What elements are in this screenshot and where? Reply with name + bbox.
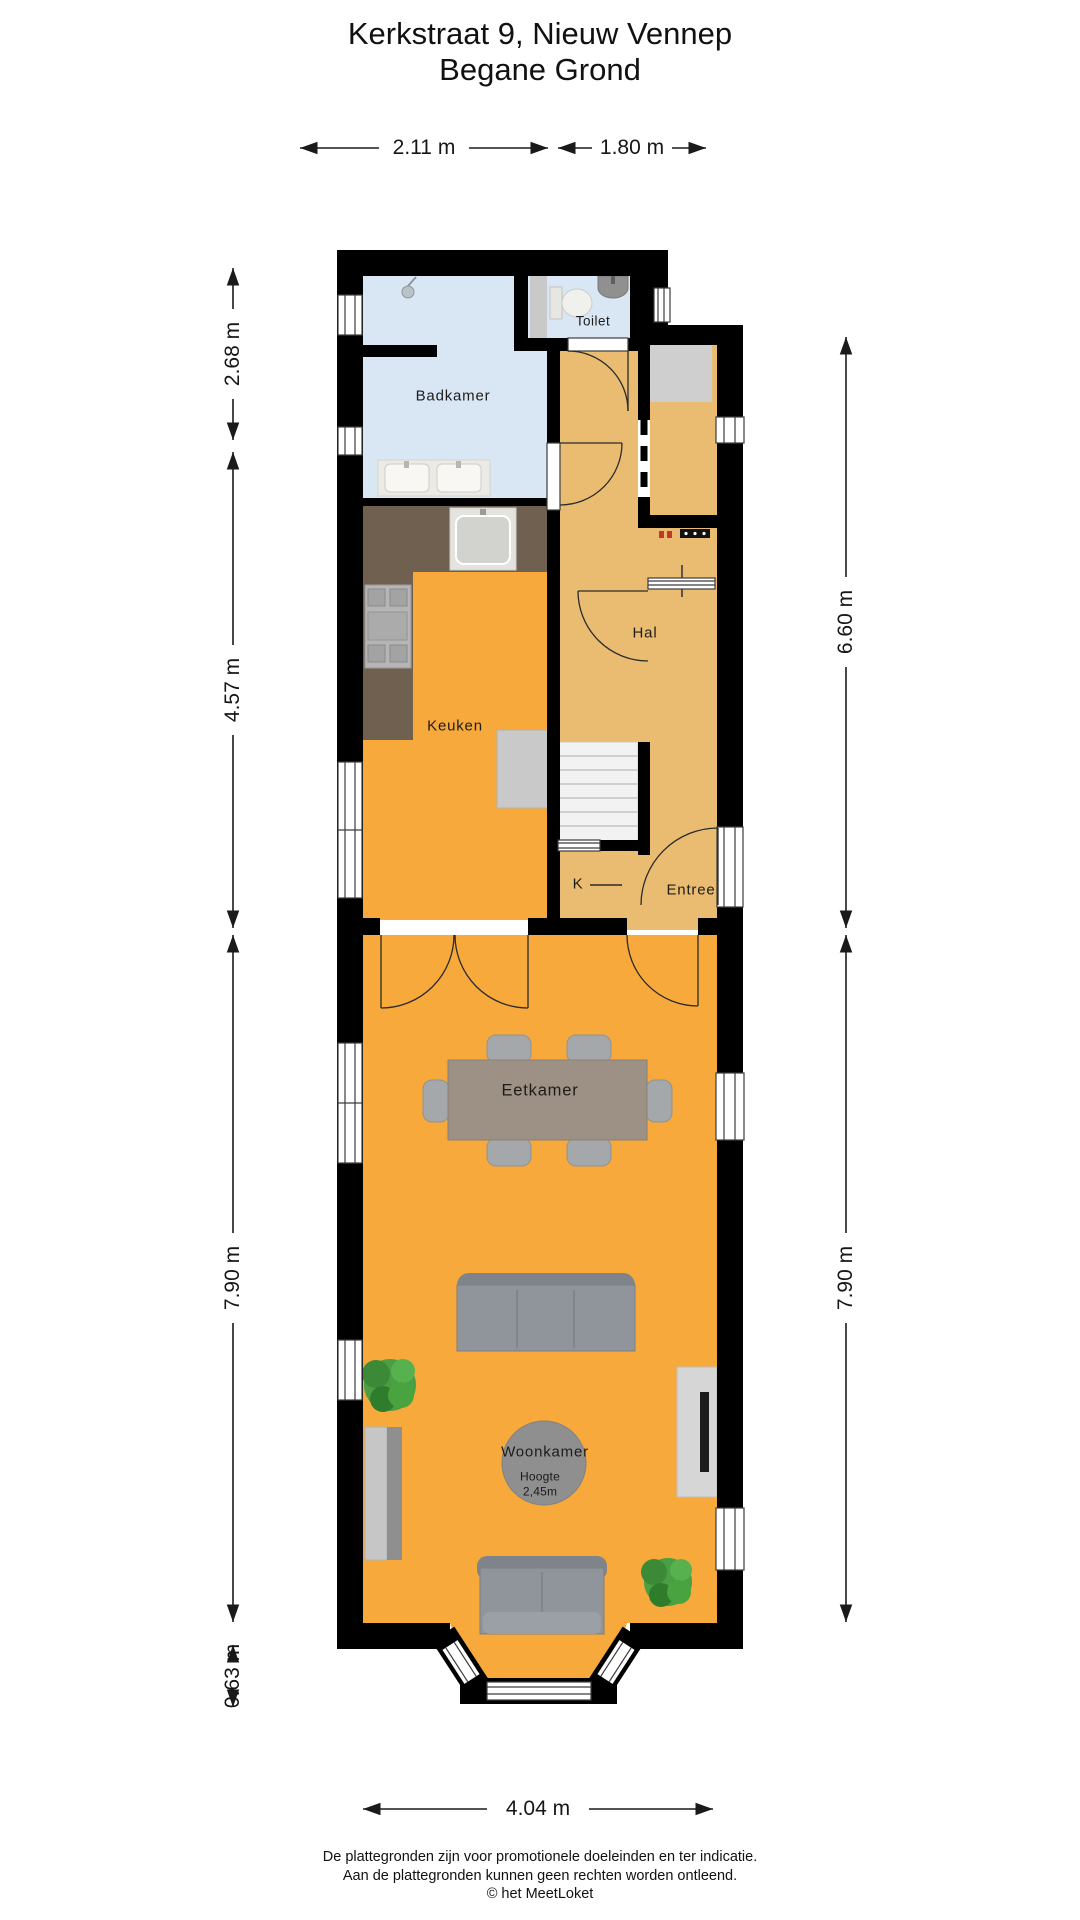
stairs-icon [557, 742, 638, 842]
sofa-icon [457, 1273, 635, 1351]
footer-disclaimer-line1: De plattegronden zijn voor promotionele … [0, 1849, 1080, 1865]
loveseat-icon [477, 1556, 607, 1634]
dim-label-bottom: 4.04 m [506, 1797, 570, 1821]
dim-label-right-2: 7.90 m [834, 1246, 858, 1310]
dim-label-right-1: 6.60 m [834, 590, 858, 654]
toilet-sink-icon [598, 276, 628, 298]
dim-label-top-right: 1.80 m [600, 136, 664, 160]
height-note-line1: Hoogte [520, 1471, 560, 1484]
room-label-badkamer: Badkamer [416, 388, 491, 405]
dim-label-left-3: 7.90 m [221, 1246, 245, 1310]
footer-copyright: © het MeetLoket [0, 1886, 1080, 1902]
room-label-keuken: Keuken [427, 718, 483, 735]
open-passage-dashed [638, 420, 650, 497]
dim-label-left-4: 0.63 m [221, 1644, 245, 1708]
stove-icon [365, 585, 411, 668]
dim-label-left-1: 2.68 m [221, 322, 245, 386]
bathroom-vanity-icon [378, 460, 490, 496]
room-label-woonkamer: Woonkamer [501, 1444, 589, 1461]
height-note-line2: 2,45m [523, 1486, 557, 1499]
footer-disclaimer-line2: Aan de plattegronden kunnen geen rechten… [0, 1868, 1080, 1884]
dim-label-left-2: 4.57 m [221, 658, 245, 722]
room-label-closet-k: K [573, 876, 584, 893]
room-label-hal: Hal [633, 625, 658, 642]
fridge-icon [497, 730, 550, 808]
room-label-entree: Entree [667, 882, 716, 899]
floorplan-drawing [0, 0, 1080, 1920]
room-label-toilet: Toilet [576, 314, 611, 329]
sideboard-icon [365, 1427, 402, 1560]
dim-label-top-left: 2.11 m [393, 136, 456, 160]
hall-mat-icon [648, 345, 712, 402]
room-label-eetkamer: Eetkamer [501, 1082, 578, 1101]
floorplan-page: Kerkstraat 9, Nieuw Vennep Begane Grond [0, 0, 1080, 1920]
kitchen-sink-icon [450, 508, 516, 570]
tv-cabinet-icon [677, 1367, 717, 1497]
